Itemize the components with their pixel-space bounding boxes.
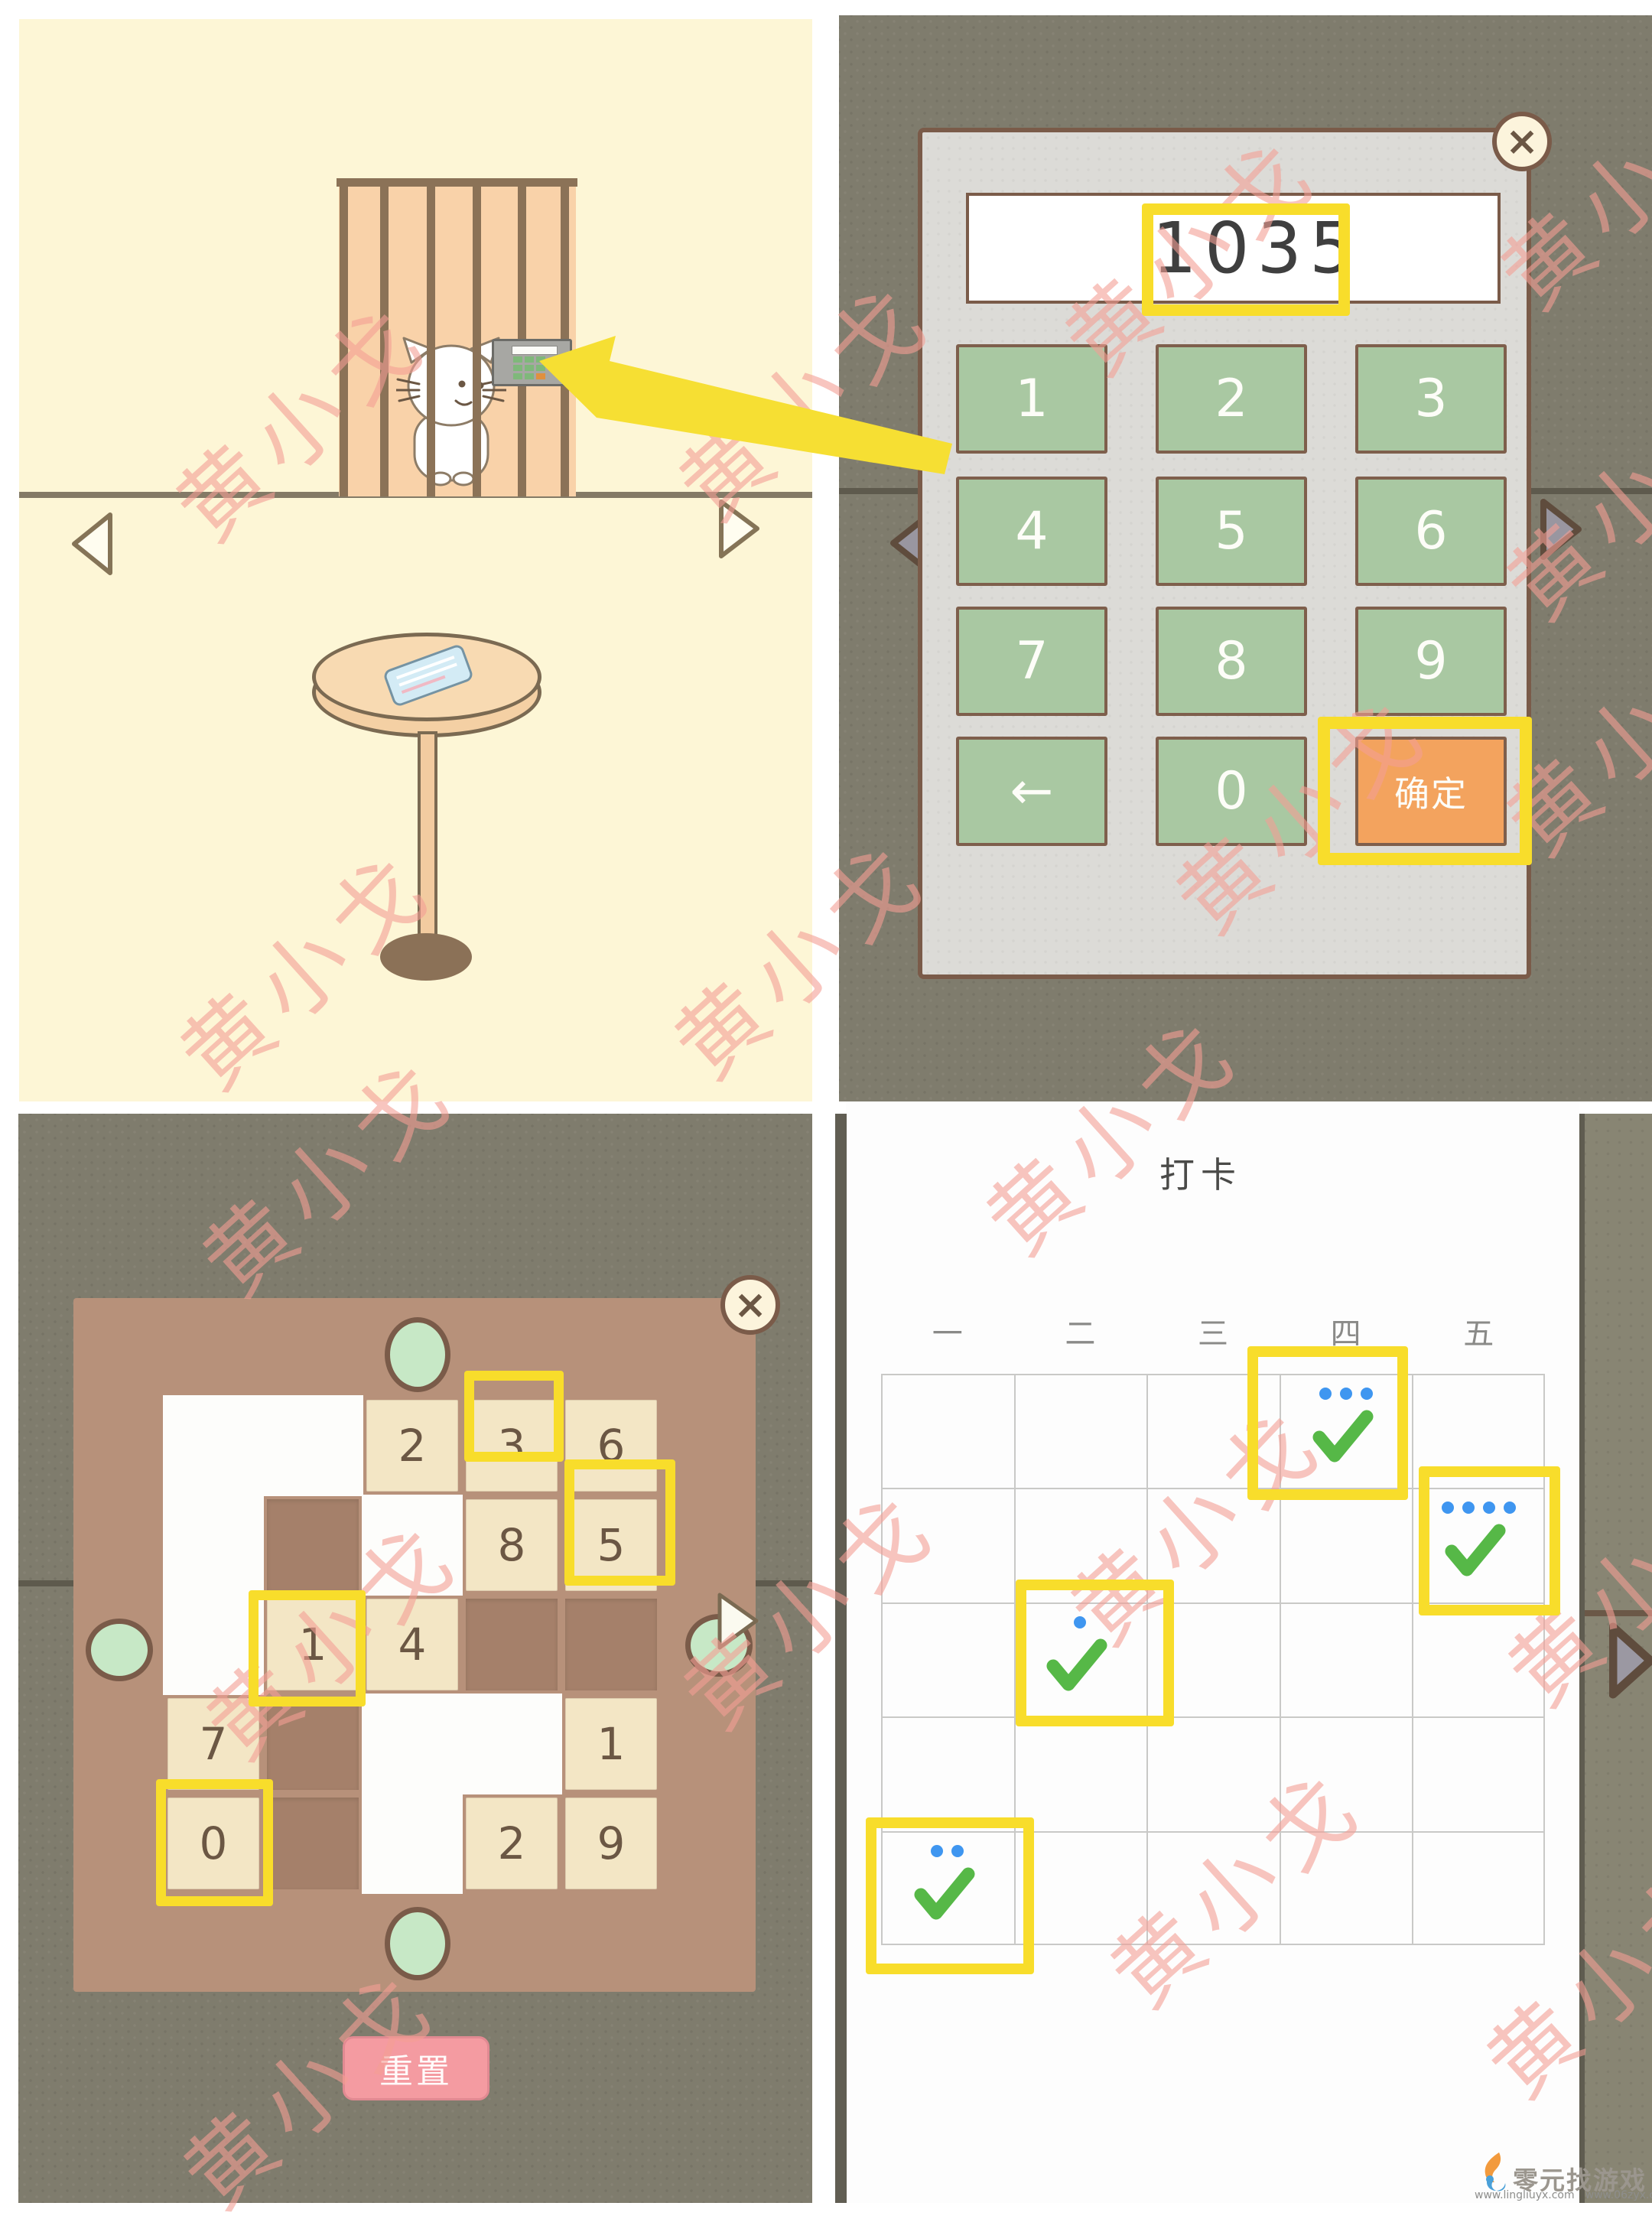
keypad-key-1[interactable]: 1 xyxy=(956,344,1107,454)
path-cell xyxy=(362,1495,463,1596)
day-header-1: 一 xyxy=(913,1309,982,1353)
keypad-key-backspace[interactable]: ← xyxy=(956,737,1107,846)
site-url: www.lingliuyx.com xyxy=(1475,2189,1575,2201)
floor-line-dim xyxy=(1585,1610,1652,1616)
grid-line xyxy=(881,1716,1545,1718)
keypad-key-9[interactable]: 9 xyxy=(1355,607,1507,716)
cage-bar xyxy=(340,178,348,496)
number-tile-2[interactable]: 2 xyxy=(466,1798,558,1889)
cage-bar xyxy=(380,178,389,496)
path-cell xyxy=(362,1694,463,1794)
empty-cell xyxy=(267,1698,359,1790)
left-triangle-icon[interactable] xyxy=(69,511,116,578)
cage-bar xyxy=(561,178,569,496)
keypad-key-2[interactable]: 2 xyxy=(1156,344,1307,454)
number-tile-1[interactable]: 1 xyxy=(565,1698,657,1790)
path-cell xyxy=(262,1395,363,1496)
site-url: www.06zyx.com xyxy=(1585,2189,1652,2201)
path-cell xyxy=(362,1793,463,1894)
highlight-box-br-check-tue xyxy=(1016,1580,1174,1726)
highlight-box-bl-tile-0 xyxy=(156,1779,273,1906)
table-base xyxy=(380,933,472,981)
highlight-box-br-check-mon xyxy=(866,1817,1034,1974)
day-header-3: 三 xyxy=(1179,1309,1247,1353)
number-tile-4[interactable]: 4 xyxy=(366,1599,458,1690)
direction-button-down[interactable] xyxy=(385,1907,450,1980)
grid-line xyxy=(1412,1374,1413,1945)
direction-button-up[interactable] xyxy=(385,1317,450,1392)
keypad-device-icon[interactable] xyxy=(492,339,572,386)
cage-bar xyxy=(427,178,435,496)
right-triangle-dim-icon[interactable] xyxy=(1609,1622,1652,1700)
cage-bar xyxy=(518,178,526,496)
device-screen xyxy=(512,346,558,355)
empty-cell xyxy=(267,1499,359,1591)
right-triangle-overlay-icon[interactable] xyxy=(717,1593,760,1651)
keypad-key-4[interactable]: 4 xyxy=(956,477,1107,586)
highlight-box-bl-tile-5 xyxy=(564,1459,675,1586)
phone-edge-line xyxy=(835,1114,847,2203)
number-tile-7[interactable]: 7 xyxy=(167,1698,259,1790)
cage-bar xyxy=(473,178,481,496)
path-cell xyxy=(163,1495,264,1596)
highlight-box-tr-confirm-button xyxy=(1318,717,1532,865)
highlight-box-bl-tile-1 xyxy=(249,1590,366,1707)
keypad-key-5[interactable]: 5 xyxy=(1156,477,1307,586)
close-icon[interactable]: × xyxy=(720,1275,780,1335)
site-logo-urls: www.lingliuyx.com www.06zyx.com xyxy=(1475,2189,1637,2201)
close-icon[interactable]: × xyxy=(1492,112,1552,171)
highlight-box-tr-display-code xyxy=(1142,203,1350,316)
checkin-title: 打卡 xyxy=(1086,1147,1315,1198)
keypad-key-7[interactable]: 7 xyxy=(956,607,1107,716)
empty-cell xyxy=(565,1599,657,1690)
site-logo-icon xyxy=(1476,2151,1511,2194)
empty-cell xyxy=(466,1599,558,1690)
empty-cell xyxy=(267,1798,359,1889)
path-cell xyxy=(461,1694,562,1794)
number-tile-9[interactable]: 9 xyxy=(565,1798,657,1889)
path-cell xyxy=(163,1395,264,1496)
number-tile-8[interactable]: 8 xyxy=(466,1499,558,1591)
keypad-key-0[interactable]: 0 xyxy=(1156,737,1307,846)
right-triangle-dim-icon[interactable] xyxy=(1540,499,1583,561)
number-tile-2[interactable]: 2 xyxy=(366,1400,458,1492)
keypad-key-3[interactable]: 3 xyxy=(1355,344,1507,454)
day-header-2: 二 xyxy=(1046,1309,1114,1353)
highlight-box-br-check-fri xyxy=(1419,1466,1560,1615)
day-header-5: 五 xyxy=(1444,1309,1513,1353)
highlight-box-br-check-thu xyxy=(1247,1346,1408,1500)
keypad-key-8[interactable]: 8 xyxy=(1156,607,1307,716)
strip-seam xyxy=(1579,1114,1585,2203)
cage-top-bar xyxy=(337,178,577,187)
keypad-key-6[interactable]: 6 xyxy=(1355,477,1507,586)
highlight-box-bl-tile-3 xyxy=(464,1371,564,1462)
cat-icon[interactable] xyxy=(396,337,506,486)
right-triangle-icon[interactable] xyxy=(717,499,762,561)
direction-button-left[interactable] xyxy=(86,1619,153,1681)
reset-button[interactable]: 重置 xyxy=(343,2036,489,2100)
table-leg xyxy=(418,731,437,952)
